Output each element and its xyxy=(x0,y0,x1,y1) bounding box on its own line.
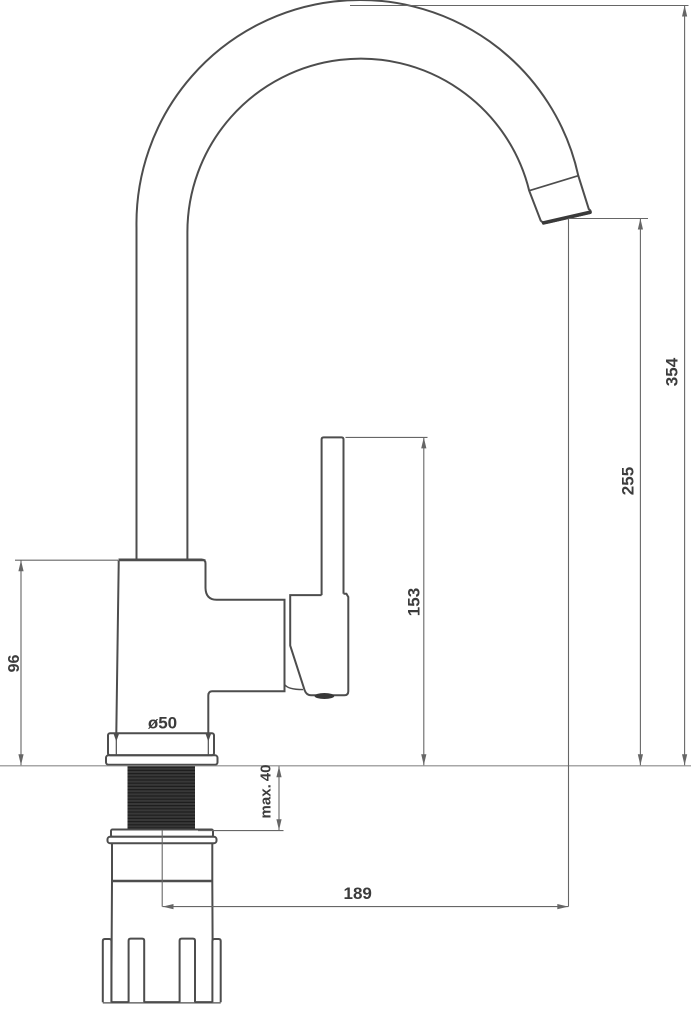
svg-text:153: 153 xyxy=(405,588,424,616)
svg-text:96: 96 xyxy=(6,655,23,673)
svg-text:189: 189 xyxy=(344,884,372,903)
svg-text:max. 40: max. 40 xyxy=(257,765,274,819)
svg-text:ø50: ø50 xyxy=(148,713,177,732)
svg-text:354: 354 xyxy=(663,357,682,386)
svg-text:255: 255 xyxy=(619,467,638,495)
